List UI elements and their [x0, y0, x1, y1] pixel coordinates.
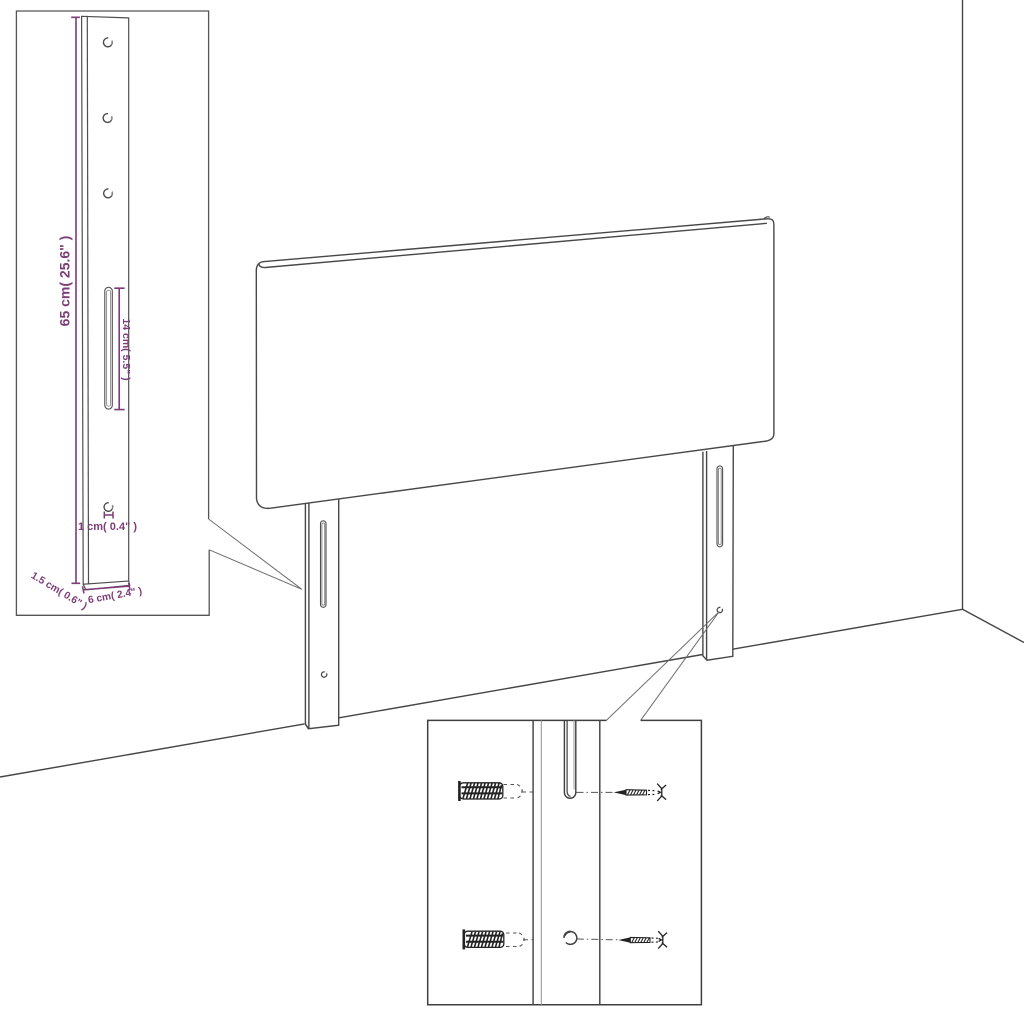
- svg-text:65 cm( 25.6" ): 65 cm( 25.6" ): [57, 236, 73, 327]
- svg-text:14 cm( 5.5" ): 14 cm( 5.5" ): [120, 318, 132, 380]
- svg-text:1 cm( 0.4" ): 1 cm( 0.4" ): [78, 521, 137, 533]
